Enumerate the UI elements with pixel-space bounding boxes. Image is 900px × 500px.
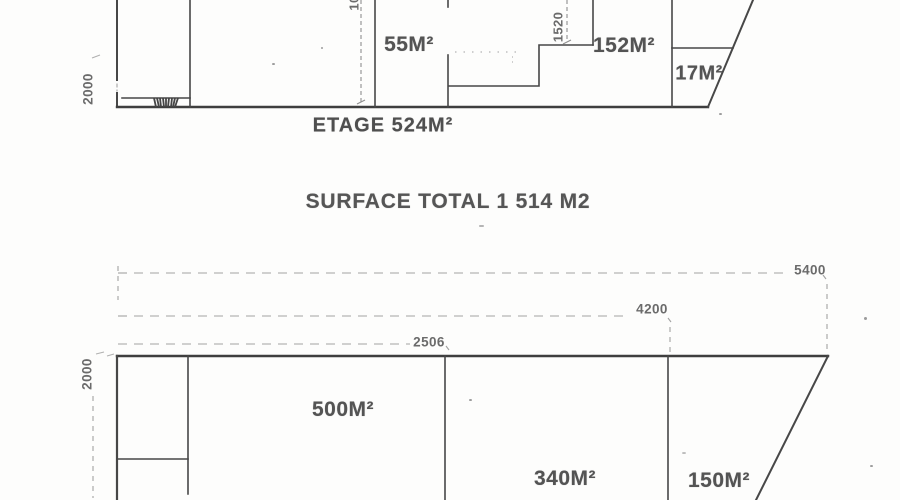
scan-speck — [321, 47, 323, 49]
scanned-floor-plan-page: 55M² 152M² 17M² ETAGE 524M² 2000 1520 10… — [0, 0, 900, 500]
scan-speck — [870, 465, 873, 467]
scan-speck — [272, 63, 275, 65]
room-label-500: 500M² — [312, 398, 374, 422]
dimension-label-4200: 4200 — [636, 302, 668, 317]
plan-linework — [0, 0, 900, 500]
surface-total-title: SURFACE TOTAL 1 514 M2 — [306, 190, 591, 214]
faint-scan-marks — [455, 52, 523, 62]
room-label-150: 150M² — [688, 469, 750, 493]
upper-plan-drawing — [117, 0, 753, 107]
dimension-label-2000-upper: 2000 — [81, 73, 96, 105]
scan-speck — [864, 317, 867, 320]
scan-speck — [682, 452, 686, 454]
scan-speck — [469, 399, 472, 401]
stairs-hatch — [154, 98, 178, 107]
dimension-label-1520: 1520 — [551, 12, 566, 43]
dimension-label-2506: 2506 — [413, 335, 445, 350]
dimension-label-2000-lower: 2000 — [80, 358, 95, 390]
dimension-label-clipped-top: 10 — [347, 0, 362, 11]
lower-plan-dimension-lines — [93, 266, 827, 498]
room-label-340: 340M² — [534, 467, 596, 491]
scan-speck — [719, 113, 722, 115]
floor-caption: ETAGE 524M² — [313, 115, 454, 138]
room-label-152: 152M² — [593, 34, 655, 58]
room-label-55: 55M² — [384, 33, 434, 57]
upper-plan-dimension-lines — [92, 0, 571, 104]
scan-speck — [479, 225, 484, 227]
dimension-label-5400: 5400 — [794, 263, 826, 278]
room-label-17: 17M² — [675, 63, 723, 86]
